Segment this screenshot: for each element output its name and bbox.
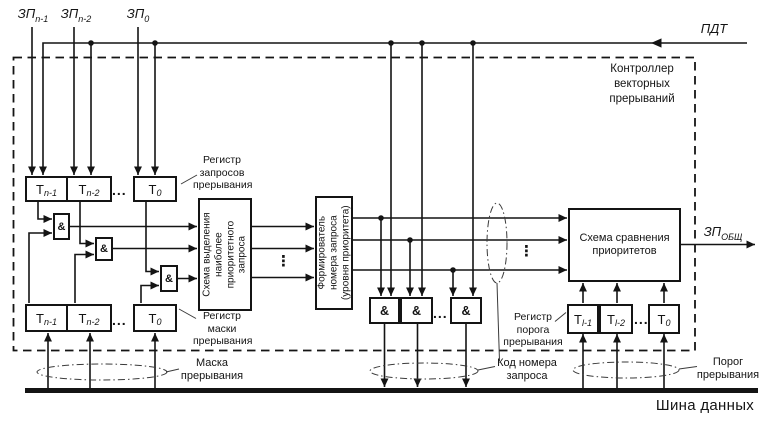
- label-pdt: ПДТ: [690, 21, 738, 36]
- code-annotation: Код номера запроса: [487, 357, 567, 383]
- cell-sub: n-2: [86, 189, 99, 198]
- request-number-former-text: Формирователь номера запроса (уровня при…: [316, 196, 351, 310]
- wire-req-n2-to-and2: [80, 201, 94, 244]
- data-bus-label: Шина данных: [650, 397, 760, 415]
- mask-register-ellipsis: ...: [112, 313, 127, 327]
- junction-dot: [450, 267, 456, 273]
- label-zp-n1: ЗПn-1: [12, 6, 54, 21]
- label-zp-common-sub: ОБЩ: [721, 233, 742, 242]
- interrupt-controller-diagram: ЗПn-1 ЗПn-2 ЗП0 ПДТ ЗПОБЩ Контроллер век…: [0, 0, 770, 427]
- and-gate-1: &: [53, 213, 70, 240]
- and-gate-symbol: &: [165, 273, 173, 285]
- wire-req-0-to-and3: [146, 201, 159, 272]
- cell-sub: 0: [156, 189, 161, 198]
- label-zp-0-sub: 0: [144, 15, 149, 24]
- cell-sub: 0: [665, 319, 670, 328]
- cell-text: Т: [149, 183, 157, 196]
- label-zp-n1-sub: n-1: [35, 15, 48, 24]
- label-zp-n2-sub: n-2: [78, 15, 91, 24]
- cell-sub: l-1: [582, 319, 592, 328]
- bundle-ellipse-threshold: [573, 362, 679, 378]
- junction-dot: [88, 40, 94, 46]
- threshold-register-cell-0: Т0: [648, 304, 680, 334]
- junction-dot: [470, 40, 476, 46]
- and-gate-symbol: &: [412, 304, 421, 318]
- mask-register-cell-0: Т0: [133, 304, 177, 332]
- request-register-cell-0: Т0: [133, 176, 177, 202]
- wire-mask-n2-to-and2: [75, 255, 94, 304]
- threshold-register-ellipsis: ...: [634, 312, 649, 326]
- request-number-former-block: Формирователь номера запроса (уровня при…: [315, 196, 353, 310]
- priority-lines-vdots: ⋮: [519, 244, 534, 259]
- and-gate-out-3: &: [450, 297, 482, 324]
- cell-sub: l-2: [615, 319, 625, 328]
- cell-text: Т: [36, 312, 44, 325]
- cell-sub: 0: [156, 318, 161, 327]
- and-gate-symbol: &: [100, 243, 108, 255]
- label-zp-n2: ЗПn-2: [54, 6, 98, 21]
- wire-mask-n1-to-and1: [29, 233, 52, 303]
- threshold-register-cell-l2: Тl-2: [599, 304, 633, 334]
- junction-dot: [419, 40, 425, 46]
- and-gate-symbol: &: [461, 304, 470, 318]
- junction-dot: [378, 215, 384, 221]
- label-zp-0: ЗП0: [121, 6, 155, 21]
- pdt-direction-arrowhead: [651, 38, 662, 47]
- junction-dot: [388, 40, 394, 46]
- cell-sub: n-1: [44, 318, 57, 327]
- cell-text: Т: [79, 312, 87, 325]
- mask-register-label: Регистр маски прерывания: [193, 310, 251, 348]
- priority-comparator-text: Схема сравнения приоритетов: [579, 232, 669, 258]
- cell-text: Т: [574, 313, 582, 326]
- junction-dot: [152, 40, 158, 46]
- selector-former-vdots: ⋮: [276, 254, 291, 269]
- and-gate-out-1: &: [369, 297, 400, 324]
- label-zp-n1-base: ЗП: [18, 6, 35, 21]
- threshold-register-cell-l1: Тl-1: [567, 304, 599, 334]
- priority-selector-text: Схема выделения наиболее приоритетного з…: [201, 200, 248, 310]
- junction-dot: [407, 237, 413, 243]
- cell-text: Т: [36, 183, 44, 196]
- cell-text: Т: [79, 183, 87, 196]
- mask-register-cell-n2: Тn-2: [66, 304, 112, 332]
- and-gate-out-2: &: [400, 297, 433, 324]
- and-gate-symbol: &: [58, 221, 66, 233]
- output-gates-ellipsis: ...: [433, 306, 448, 320]
- request-register-ellipsis: ...: [112, 183, 127, 197]
- mask-annotation: Маска прерывания: [170, 357, 254, 383]
- bundle-ellipse-priority-lines: [487, 203, 507, 283]
- cell-sub: n-2: [86, 318, 99, 327]
- priority-selector-block: Схема выделения наиболее приоритетного з…: [198, 198, 252, 311]
- request-register-label: Регистр запросов прерывания: [193, 154, 251, 192]
- mask-register-cell-n1: Тn-1: [25, 304, 68, 332]
- cell-text: Т: [607, 313, 615, 326]
- cell-text: Т: [149, 312, 157, 325]
- wire-req-n1-to-and1: [38, 201, 52, 219]
- request-register-cell-n2: Тn-2: [66, 176, 112, 202]
- label-zp-common: ЗПОБЩ: [696, 224, 750, 239]
- and-gate-2: &: [95, 237, 113, 261]
- priority-comparator-block: Схема сравнения приоритетов: [568, 208, 681, 282]
- bundle-ellipse-code: [370, 363, 478, 379]
- label-zp-n2-base: ЗП: [61, 6, 78, 21]
- label-pdt-text: ПДТ: [701, 21, 728, 36]
- threshold-annotation: Порог прерывания: [690, 356, 766, 382]
- wire-mask-0-to-and3: [141, 286, 159, 304]
- label-zp-0-base: ЗП: [127, 6, 144, 21]
- request-register-cell-n1: Тn-1: [25, 176, 68, 202]
- controller-title: Контроллер векторных прерываний: [594, 62, 690, 107]
- cell-text: Т: [658, 313, 666, 326]
- cell-sub: n-1: [44, 189, 57, 198]
- and-gate-3: &: [160, 265, 178, 292]
- bundle-ellipse-mask: [37, 364, 167, 380]
- label-zp-common-base: ЗП: [704, 224, 721, 239]
- threshold-register-label: Регистр порога прерывания: [498, 311, 568, 349]
- and-gate-symbol: &: [380, 304, 389, 318]
